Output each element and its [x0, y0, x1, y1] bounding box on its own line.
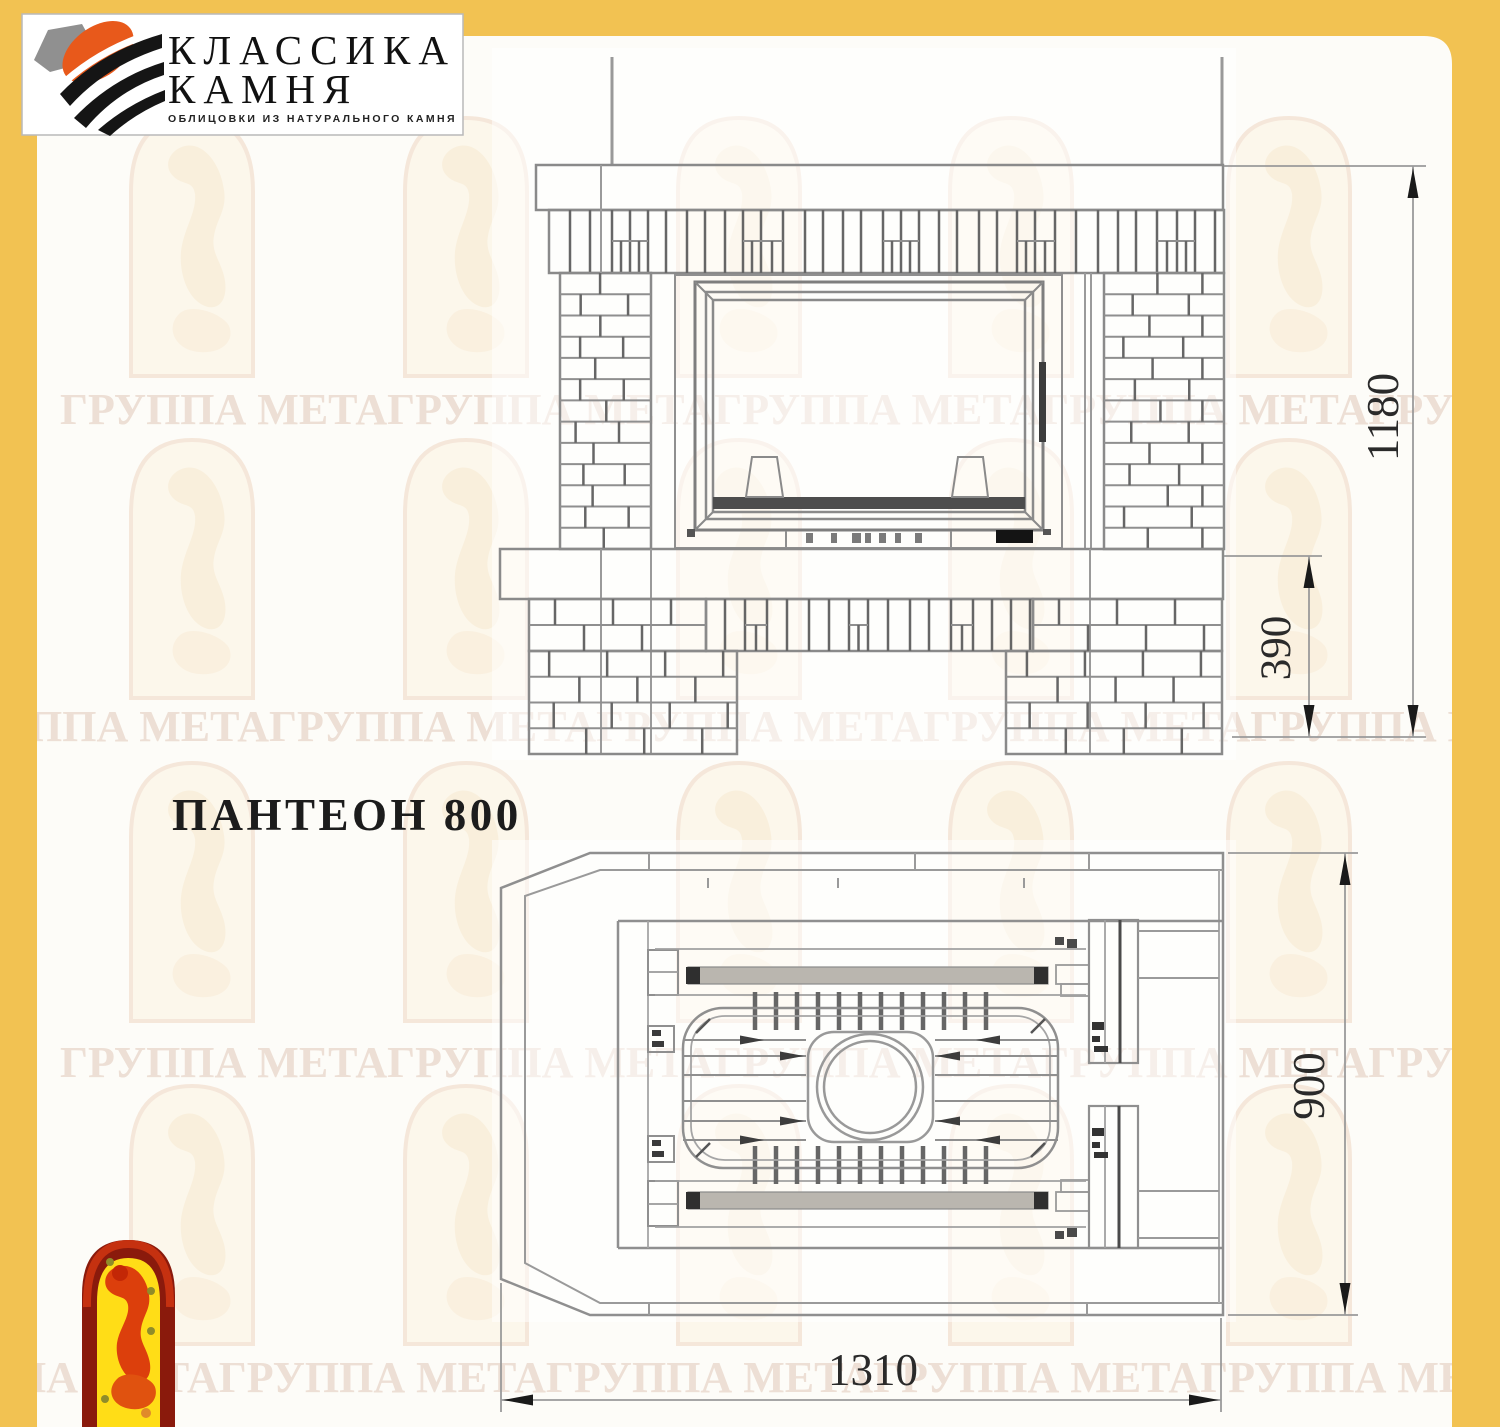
svg-text:ПА МЕТАГРУППА МЕТАГРУППА МЕТАГ: ПА МЕТАГРУППА МЕТАГРУППА МЕТАГРУППА МЕТА… — [12, 1353, 1500, 1402]
svg-text:900: 900 — [1284, 1052, 1334, 1120]
svg-text:КАМНЯ: КАМНЯ — [168, 66, 358, 112]
svg-text:1180: 1180 — [1358, 373, 1408, 461]
svg-text:ПАНТЕОН 800: ПАНТЕОН 800 — [172, 790, 522, 840]
svg-text:390: 390 — [1253, 616, 1300, 681]
svg-text:ОБЛИЦОВКИ ИЗ НАТУРАЛЬНОГО КАМН: ОБЛИЦОВКИ ИЗ НАТУРАЛЬНОГО КАМНЯ — [168, 113, 457, 125]
svg-text:1310: 1310 — [828, 1345, 918, 1395]
